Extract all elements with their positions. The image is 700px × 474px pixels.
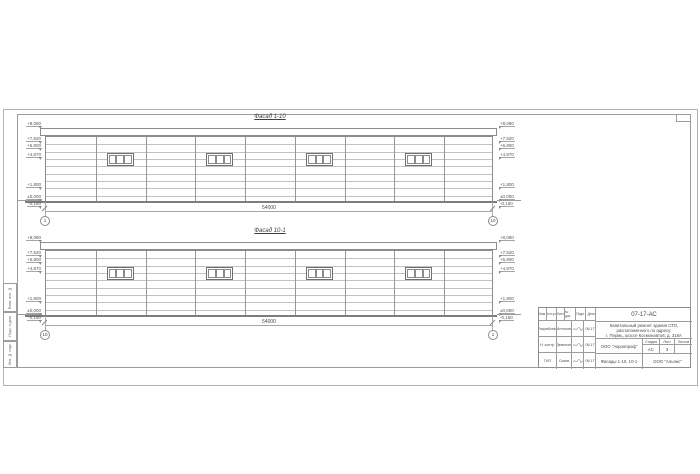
role-cell: ГИП bbox=[539, 353, 557, 369]
signature-row: ГИП Сизов 06.17 bbox=[539, 353, 596, 369]
elevation-mark: +1,800 bbox=[499, 296, 527, 302]
window-pane bbox=[423, 269, 431, 278]
elevation-value: +7,520 bbox=[499, 250, 515, 256]
signature-row: Разработал Антонов 06.17 bbox=[539, 321, 596, 337]
window-pane bbox=[116, 155, 124, 164]
title-block: Изм. Кол.уч. Лист № док. Подп. Дата Разр… bbox=[538, 307, 691, 368]
elevation-mark: +7,520 bbox=[499, 136, 527, 142]
dimension-label: 54000 bbox=[45, 205, 493, 211]
elevation-mark: +4,870 bbox=[499, 152, 527, 158]
panel-vertical-joint bbox=[295, 251, 296, 315]
window-pane bbox=[316, 155, 324, 164]
window-pane bbox=[224, 269, 232, 278]
window-pane bbox=[208, 269, 216, 278]
col-doc: № док. bbox=[565, 308, 576, 321]
ribbon-window bbox=[206, 153, 233, 166]
panel-vertical-joint bbox=[444, 251, 445, 315]
elevation-value: +1,800 bbox=[26, 182, 42, 188]
ground-line bbox=[25, 315, 497, 317]
elevation-value: ±0,000 bbox=[499, 308, 515, 314]
name-cell: Девяткин bbox=[557, 337, 572, 353]
elevation-value: +4,870 bbox=[499, 152, 515, 158]
stage-value: АС bbox=[643, 345, 660, 354]
ribbon-window bbox=[405, 153, 432, 166]
panel-joint-line bbox=[46, 181, 492, 182]
elevation-mark: +6,800 bbox=[499, 257, 527, 263]
ribbon-window bbox=[405, 267, 432, 280]
description-line: г. Пермь, шоссе Космонавтов, д. 318А bbox=[606, 333, 682, 338]
window-pane bbox=[415, 155, 423, 164]
window-pane bbox=[423, 155, 431, 164]
sheet-title: Фасады 1-10, 10-1 bbox=[596, 354, 643, 369]
panel-joint-line bbox=[46, 302, 492, 303]
panel-joint-line bbox=[46, 166, 492, 167]
facade-title: Фасад 1-10 bbox=[195, 114, 345, 120]
elevation-mark: +6,800 bbox=[14, 143, 42, 149]
col-izm: Изм. bbox=[539, 308, 547, 321]
window-pane bbox=[208, 155, 216, 164]
col-kol: Кол.уч. bbox=[547, 308, 557, 321]
window-pane bbox=[308, 269, 316, 278]
name-cell: Сизов bbox=[557, 353, 572, 369]
elevation-mark: +4,870 bbox=[14, 266, 42, 272]
signature-cell bbox=[572, 337, 584, 353]
window-pane bbox=[415, 269, 423, 278]
elevation-marks-left: +8,080+7,520+6,800+4,870+1,800±0,000-0,1… bbox=[14, 226, 42, 344]
panel-vertical-joint bbox=[146, 251, 147, 315]
panel-vertical-joint bbox=[444, 137, 445, 201]
panel-joint-line bbox=[46, 174, 492, 175]
elevation-value: +4,870 bbox=[26, 152, 42, 158]
window-pane bbox=[316, 269, 324, 278]
window-pane bbox=[109, 269, 117, 278]
panel-vertical-joint bbox=[295, 137, 296, 201]
date-cell: 06.17 bbox=[584, 353, 596, 369]
window-pane bbox=[224, 155, 232, 164]
elevation-value: ±0,000 bbox=[499, 194, 515, 200]
ribbon-window bbox=[306, 153, 333, 166]
dimension-label: 54000 bbox=[45, 319, 493, 325]
side-stamp-inv-podl: Инв. № подл. bbox=[3, 341, 17, 368]
elevation-value: -0,150 bbox=[27, 201, 42, 207]
elevation-mark: +7,520 bbox=[14, 136, 42, 142]
signature-cell bbox=[572, 321, 584, 337]
elevation-mark: +7,520 bbox=[499, 250, 527, 256]
elevation-mark: +8,080 bbox=[14, 121, 42, 127]
elevation-mark: -0,150 bbox=[14, 201, 42, 207]
elevation-mark: +6,800 bbox=[14, 257, 42, 263]
elevation-value: +4,870 bbox=[499, 266, 515, 272]
elevation-value: ±0,000 bbox=[26, 308, 42, 314]
elevation-mark: +6,800 bbox=[499, 143, 527, 149]
window-pane bbox=[308, 155, 316, 164]
role-cell: Н. контр. bbox=[539, 337, 557, 353]
signature-icon bbox=[573, 358, 583, 364]
wall-outline bbox=[45, 250, 493, 316]
elevation-value: +7,520 bbox=[26, 250, 42, 256]
panel-joint-line bbox=[46, 258, 492, 259]
elevation-value: +8,080 bbox=[499, 121, 515, 127]
panel-joint-line bbox=[46, 188, 492, 189]
dimension-line bbox=[45, 211, 493, 212]
panel-vertical-joint bbox=[96, 137, 97, 201]
elevation-value: +8,080 bbox=[499, 235, 515, 241]
elevation-mark: +8,080 bbox=[499, 121, 527, 127]
elevation-mark: +7,520 bbox=[14, 250, 42, 256]
elevation-marks-left: +8,080+7,520+6,800+4,870+1,800±0,000-0,1… bbox=[14, 112, 42, 230]
facade-title: Фасад 10-1 bbox=[195, 228, 345, 234]
ribbon-window bbox=[206, 267, 233, 280]
elevation-value: +1,800 bbox=[499, 182, 515, 188]
col-podp: Подп. bbox=[576, 308, 586, 321]
signature-cell bbox=[572, 353, 584, 369]
contractor-organization: ООО "Альянс" bbox=[643, 354, 692, 369]
elevation-value: +6,800 bbox=[26, 257, 42, 263]
date-cell: 06.17 bbox=[584, 337, 596, 353]
signature-row: Н. контр. Девяткин 06.17 bbox=[539, 337, 596, 353]
window-pane bbox=[216, 269, 224, 278]
elevation-mark: -0,150 bbox=[499, 315, 527, 321]
panel-vertical-joint bbox=[245, 137, 246, 201]
project-description: Капитальный ремонт здания СТО, расположе… bbox=[596, 322, 692, 339]
elevation-value: +4,870 bbox=[26, 266, 42, 272]
grid-bubble-right: 1 bbox=[488, 330, 498, 340]
parapet-coping bbox=[40, 242, 497, 250]
facade-elevation-1-10: Фасад 1-10 54000 1 10 +8,080+7,520+6,800… bbox=[0, 112, 700, 230]
elevation-mark: +4,870 bbox=[499, 266, 527, 272]
panel-vertical-joint bbox=[96, 251, 97, 315]
signature-icon bbox=[573, 326, 583, 332]
wall-outline bbox=[45, 136, 493, 202]
design-organization: ООО "Акронпроф" bbox=[596, 339, 643, 354]
col-data: Дата bbox=[586, 308, 596, 321]
role-cell: Разработал bbox=[539, 321, 557, 337]
panel-joint-line bbox=[46, 144, 492, 145]
elevation-mark: +1,800 bbox=[14, 296, 42, 302]
window-pane bbox=[216, 155, 224, 164]
panel-joint-line bbox=[46, 288, 492, 289]
ground-line bbox=[25, 201, 497, 203]
panel-joint-line bbox=[46, 310, 492, 311]
elevation-value: -0,150 bbox=[27, 315, 42, 321]
elevation-marks-right: +8,080+7,520+6,800+4,870+1,800±0,000-0,1… bbox=[499, 112, 527, 230]
elevation-mark: -0,150 bbox=[14, 315, 42, 321]
elevation-value: +6,800 bbox=[499, 143, 515, 149]
elevation-value: +8,080 bbox=[26, 121, 42, 127]
sheets-total bbox=[675, 345, 692, 354]
elevation-marks-right: +8,080+7,520+6,800+4,870+1,800±0,000-0,1… bbox=[499, 226, 527, 344]
panel-vertical-joint bbox=[195, 137, 196, 201]
elevation-value: +1,800 bbox=[26, 296, 42, 302]
panel-vertical-joint bbox=[394, 251, 395, 315]
panel-joint-line bbox=[46, 295, 492, 296]
elevation-mark: -0,150 bbox=[499, 201, 527, 207]
elevation-value: ±0,000 bbox=[26, 194, 42, 200]
panel-joint-line bbox=[46, 196, 492, 197]
ribbon-window bbox=[306, 267, 333, 280]
window-pane bbox=[323, 269, 331, 278]
window-pane bbox=[323, 155, 331, 164]
panel-vertical-joint bbox=[345, 251, 346, 315]
elevation-mark: +1,800 bbox=[14, 182, 42, 188]
stage-table: Стадия Лист Листов АС 3 bbox=[643, 339, 692, 354]
parapet-coping bbox=[40, 128, 497, 136]
elevation-value: +7,520 bbox=[499, 136, 515, 142]
window-pane bbox=[407, 269, 415, 278]
elevation-value: +8,080 bbox=[26, 235, 42, 241]
panel-vertical-joint bbox=[146, 137, 147, 201]
date-cell: 06.17 bbox=[584, 321, 596, 337]
window-pane bbox=[124, 269, 132, 278]
elevation-mark: ±0,000 bbox=[499, 194, 527, 200]
change-table-header: Изм. Кол.уч. Лист № док. Подп. Дата bbox=[539, 308, 596, 321]
elevation-mark: ±0,000 bbox=[499, 308, 527, 314]
title-block-signature-table: Изм. Кол.уч. Лист № док. Подп. Дата Разр… bbox=[539, 308, 596, 369]
panel-joint-line bbox=[46, 280, 492, 281]
elevation-value: +7,520 bbox=[26, 136, 42, 142]
elevation-value: -0,150 bbox=[499, 315, 514, 321]
col-list: Лист bbox=[557, 308, 565, 321]
elevation-mark: ±0,000 bbox=[14, 308, 42, 314]
elevation-mark: +1,800 bbox=[499, 182, 527, 188]
elevation-mark: ±0,000 bbox=[14, 194, 42, 200]
elevation-mark: +4,870 bbox=[14, 152, 42, 158]
elevation-mark: +8,080 bbox=[14, 235, 42, 241]
name-cell: Антонов bbox=[557, 321, 572, 337]
ribbon-window bbox=[107, 153, 134, 166]
elevation-value: +1,800 bbox=[499, 296, 515, 302]
elevation-mark: +8,080 bbox=[499, 235, 527, 241]
dimension-line bbox=[45, 325, 493, 326]
window-pane bbox=[407, 155, 415, 164]
panel-vertical-joint bbox=[394, 137, 395, 201]
drawing-sheet: Взам. инв. № Подп. и дата Инв. № подл. Ф… bbox=[0, 0, 700, 474]
ribbon-window bbox=[107, 267, 134, 280]
document-designation: 07-17-АС bbox=[596, 308, 692, 322]
window-pane bbox=[109, 155, 117, 164]
panel-vertical-joint bbox=[345, 137, 346, 201]
panel-vertical-joint bbox=[195, 251, 196, 315]
side-stamp-label: Инв. № подл. bbox=[8, 343, 12, 365]
sheet-number: 3 bbox=[660, 345, 675, 354]
panel-vertical-joint bbox=[245, 251, 246, 315]
elevation-value: +6,800 bbox=[26, 143, 42, 149]
signature-icon bbox=[573, 342, 583, 348]
window-pane bbox=[124, 155, 132, 164]
window-pane bbox=[116, 269, 124, 278]
elevation-value: -0,150 bbox=[499, 201, 514, 207]
elevation-value: +6,800 bbox=[499, 257, 515, 263]
grid-bubble-right: 10 bbox=[488, 216, 498, 226]
